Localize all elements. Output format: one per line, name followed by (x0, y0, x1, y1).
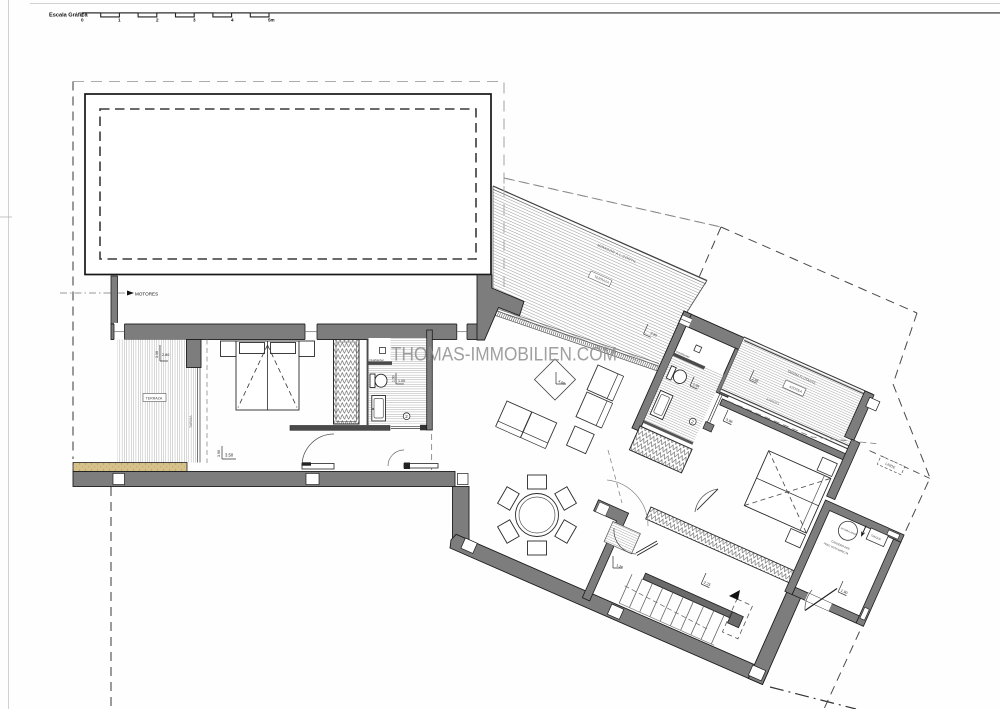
svg-text:THOMAS-IMMOBILIEN.COM: THOMAS-IMMOBILIEN.COM (391, 344, 617, 366)
svg-text:TARIMA: TARIMA (189, 415, 193, 428)
svg-text:2.80: 2.80 (162, 353, 169, 357)
svg-text:1.90: 1.90 (392, 375, 396, 382)
svg-text:3.30: 3.30 (155, 351, 159, 358)
svg-text:3.90: 3.90 (217, 450, 221, 457)
svg-text:TERRAZA: TERRAZA (146, 397, 163, 401)
svg-text:1: 1 (118, 18, 121, 23)
svg-text:5m: 5m (268, 18, 275, 23)
svg-text:2: 2 (156, 18, 159, 23)
svg-text:0: 0 (81, 18, 84, 23)
svg-text:1.05: 1.05 (398, 379, 405, 383)
svg-text:4: 4 (231, 18, 234, 23)
svg-text:MOTORES: MOTORES (135, 292, 158, 297)
svg-text:VistaMarbel: VistaMarbel (369, 358, 384, 362)
svg-text:3.50: 3.50 (225, 453, 234, 458)
svg-text:3: 3 (193, 18, 196, 23)
